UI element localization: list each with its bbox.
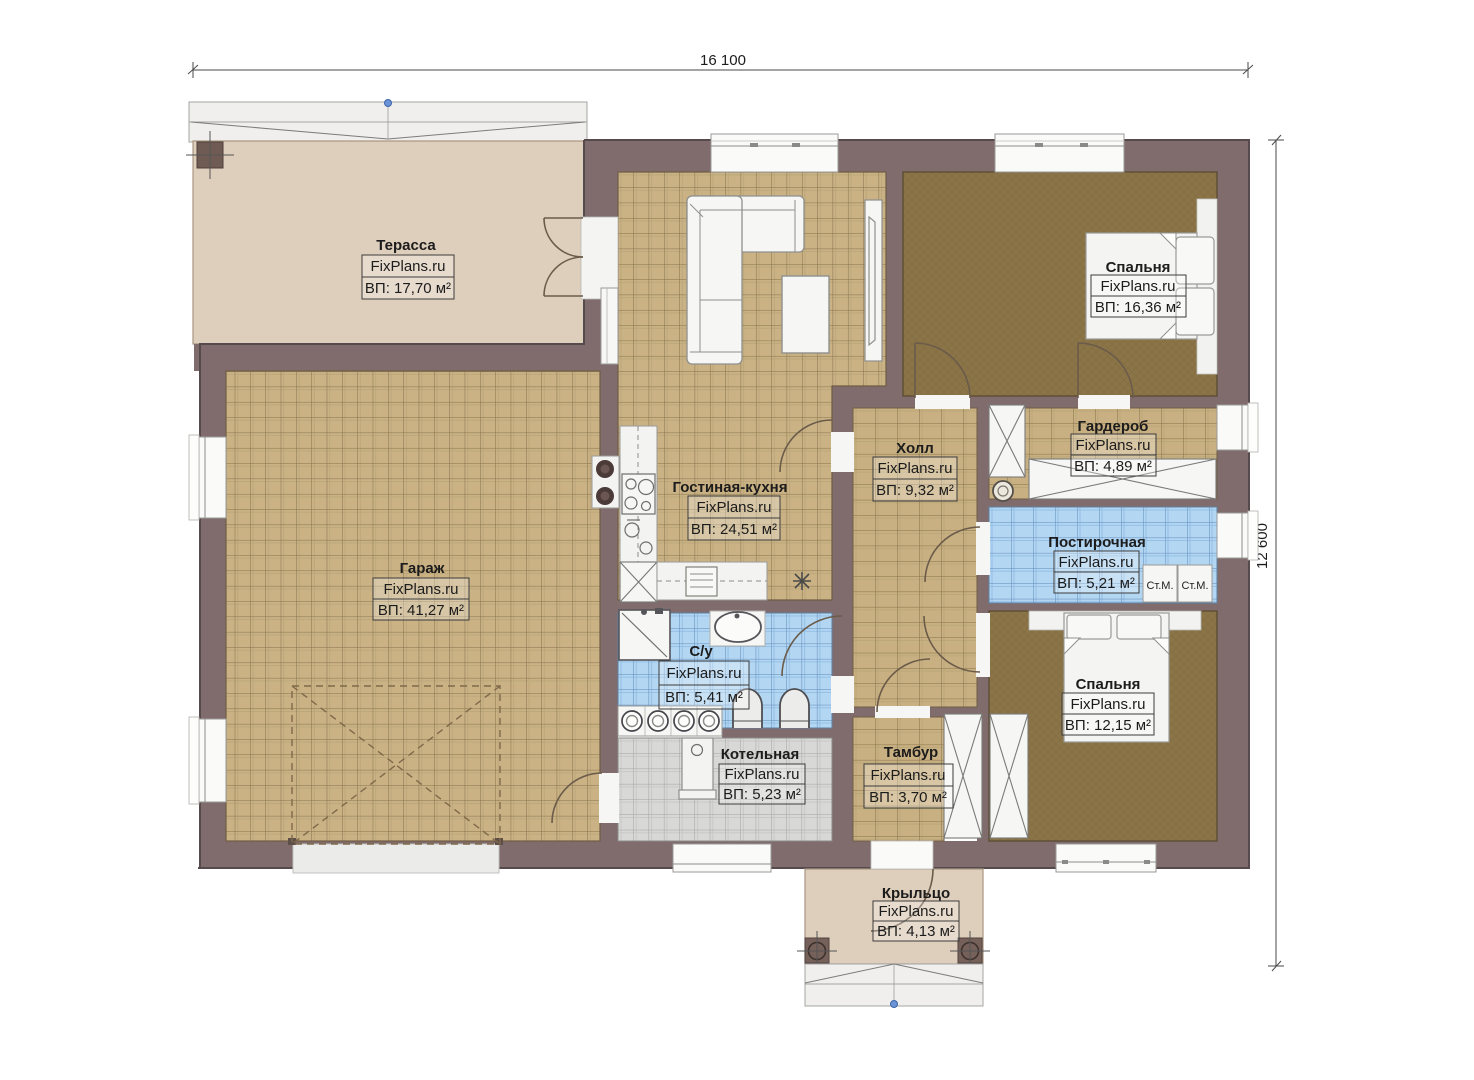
svg-text:Ст.М.: Ст.М. [1181,580,1208,592]
svg-text:ВП: 9,32 м²: ВП: 9,32 м² [876,482,954,499]
svg-text:ВП: 41,27 м²: ВП: 41,27 м² [378,602,464,619]
svg-text:ВП: 17,70 м²: ВП: 17,70 м² [365,280,451,297]
svg-text:С/у: С/у [689,643,713,660]
svg-text:Тамбур: Тамбур [884,744,938,761]
svg-text:Спальня: Спальня [1106,259,1171,276]
svg-text:FixPlans.ru: FixPlans.ru [870,767,945,784]
svg-text:FixPlans.ru: FixPlans.ru [696,499,771,516]
svg-text:FixPlans.ru: FixPlans.ru [877,460,952,477]
svg-text:FixPlans.ru: FixPlans.ru [666,665,741,682]
svg-text:FixPlans.ru: FixPlans.ru [1070,696,1145,713]
svg-text:FixPlans.ru: FixPlans.ru [1058,554,1133,571]
svg-text:16 100: 16 100 [700,52,746,69]
svg-text:ВП: 16,36 м²: ВП: 16,36 м² [1095,299,1181,316]
svg-text:ВП: 24,51 м²: ВП: 24,51 м² [691,521,777,538]
svg-text:ВП: 4,89 м²: ВП: 4,89 м² [1074,458,1152,475]
svg-text:Крыльцо: Крыльцо [882,885,950,902]
svg-text:ВП: 4,13 м²: ВП: 4,13 м² [877,923,955,940]
svg-text:Постирочная: Постирочная [1048,534,1145,551]
svg-text:FixPlans.ru: FixPlans.ru [724,766,799,783]
svg-text:FixPlans.ru: FixPlans.ru [1100,278,1175,295]
svg-text:Гараж: Гараж [400,560,445,577]
svg-text:ВП: 5,41 м²: ВП: 5,41 м² [665,689,743,706]
svg-text:Ст.М.: Ст.М. [1146,580,1173,592]
svg-text:FixPlans.ru: FixPlans.ru [383,581,458,598]
svg-text:Гардероб: Гардероб [1078,418,1149,435]
svg-text:ВП: 5,23 м²: ВП: 5,23 м² [723,786,801,803]
svg-text:Терасса: Терасса [376,237,436,254]
svg-text:FixPlans.ru: FixPlans.ru [878,903,953,920]
svg-text:ВП: 12,15 м²: ВП: 12,15 м² [1065,717,1151,734]
svg-text:Холл: Холл [896,440,934,457]
svg-text:FixPlans.ru: FixPlans.ru [370,258,445,275]
svg-text:Спальня: Спальня [1076,676,1141,693]
svg-text:Гостиная-кухня: Гостиная-кухня [673,479,788,496]
svg-text:Котельная: Котельная [721,746,800,763]
svg-text:ВП: 5,21 м²: ВП: 5,21 м² [1057,575,1135,592]
svg-text:ВП: 3,70 м²: ВП: 3,70 м² [869,789,947,806]
svg-text:FixPlans.ru: FixPlans.ru [1075,437,1150,454]
